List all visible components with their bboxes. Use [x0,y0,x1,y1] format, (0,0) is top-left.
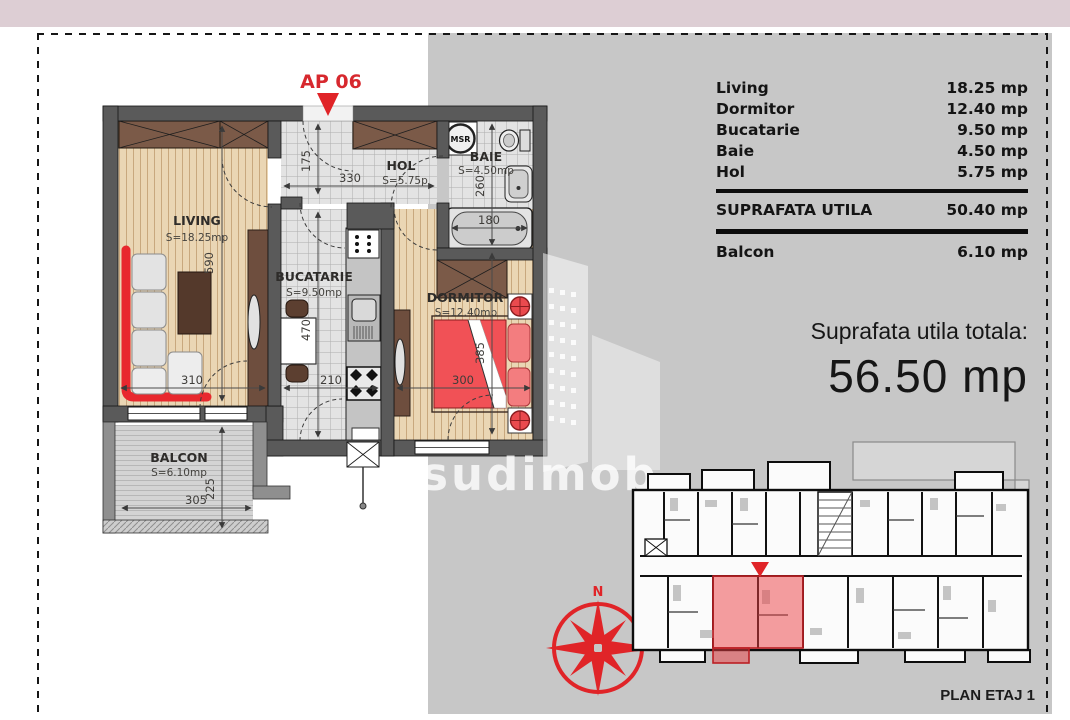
area-table: Living 18.25 mp Dormitor 12.40 mp Bucata… [716,78,1028,263]
balcony-value: 6.10 mp [957,242,1028,263]
room-hall-name: HOL [386,158,415,173]
watermark-text: sudimob [421,448,658,501]
dim-living-height: 590 [202,252,216,274]
coffee-table [178,272,211,334]
room-balcony-area: S=6.10mp [151,467,207,479]
dim-hall-width: 330 [339,171,361,185]
room-living-name: LIVING [173,213,221,228]
row-label: Baie [716,141,754,162]
table-row: Bucatarie 9.50 mp [716,120,1028,141]
table-row: Living 18.25 mp [716,78,1028,99]
chair [286,300,308,317]
row-label: Hol [716,162,745,183]
row-label: Living [716,78,769,99]
border-right-dashed [1046,33,1048,713]
overview-stairwell [818,492,852,556]
divider [716,229,1028,234]
border-left-dashed [37,33,39,713]
room-kitchen-name: BUCATARIE [275,269,353,284]
summary-value: 56.50 mp [716,349,1028,403]
north-label: N [593,585,604,600]
row-label: Dormitor [716,99,794,120]
row-value: 12.40 mp [946,99,1028,120]
table-row: Hol 5.75 mp [716,162,1028,183]
room-hall-area: S=5.75p [382,175,428,187]
room-living-area: S=18.25mp [166,232,229,244]
room-bedroom-area: S=12.40mp [435,307,498,319]
total-label: SUPRAFATA UTILA [716,200,872,221]
divider [716,189,1028,193]
summary-label: Suprafata utila totala: [716,318,1028,345]
room-balcony-name: BALCON [150,450,207,465]
stove-icon [347,367,381,400]
total-value: 50.40 mp [946,200,1028,221]
room-bath-name: BAIE [470,149,502,164]
table-row: Dormitor 12.40 mp [716,99,1028,120]
dim-balcony-width: 305 [185,493,207,507]
dim-kitchen-width: 210 [320,373,342,387]
balcony-row: Balcon 6.10 mp [716,242,1028,263]
dim-tub-width: 180 [478,213,500,227]
kitchen-sink-icon [348,295,380,341]
total-area-summary: Suprafata utila totala: 56.50 mp [716,318,1028,403]
overview-plan [633,442,1030,663]
hall-closet [353,121,437,149]
dim-bedroom-height: 385 [473,342,487,364]
toilet-icon [500,130,531,151]
row-value: 9.50 mp [957,120,1028,141]
row-value: 5.75 mp [957,162,1028,183]
header-bar [0,0,1070,27]
tv-cabinet-bedroom [394,310,410,416]
room-bedroom-name: DORMITOR [427,290,504,305]
total-row: SUPRAFATA UTILA 50.40 mp [716,200,1028,221]
apartment-tag: AP 06 [300,71,362,93]
row-value: 18.25 mp [946,78,1028,99]
floorplan-sheet: ETAJ 1 AP. 06 - 2 CAMERE [0,0,1070,720]
chair [286,365,308,382]
overview-caption: PLAN ETAJ 1 [830,687,1035,704]
dim-bedroom-width: 300 [452,373,474,387]
kitchen-window [347,442,379,509]
dim-bath-height: 260 [473,175,487,197]
highlighted-unit [713,562,803,663]
row-label: Bucatarie [716,120,800,141]
dim-hall-depth: 175 [299,150,313,172]
row-value: 4.50 mp [957,141,1028,162]
balcony-label: Balcon [716,242,774,263]
room-kitchen-area: S=9.50mp [286,287,342,299]
dim-kitchen-height: 470 [299,319,313,341]
washer-label: MSR [451,135,471,144]
dim-living-width: 310 [181,373,203,387]
nightstand [508,294,532,319]
table-row: Baie 4.50 mp [716,141,1028,162]
overview-elevator [645,539,667,556]
border-top-dashed [37,33,1048,35]
fridge-icon [348,230,379,258]
nightstand [508,408,532,433]
